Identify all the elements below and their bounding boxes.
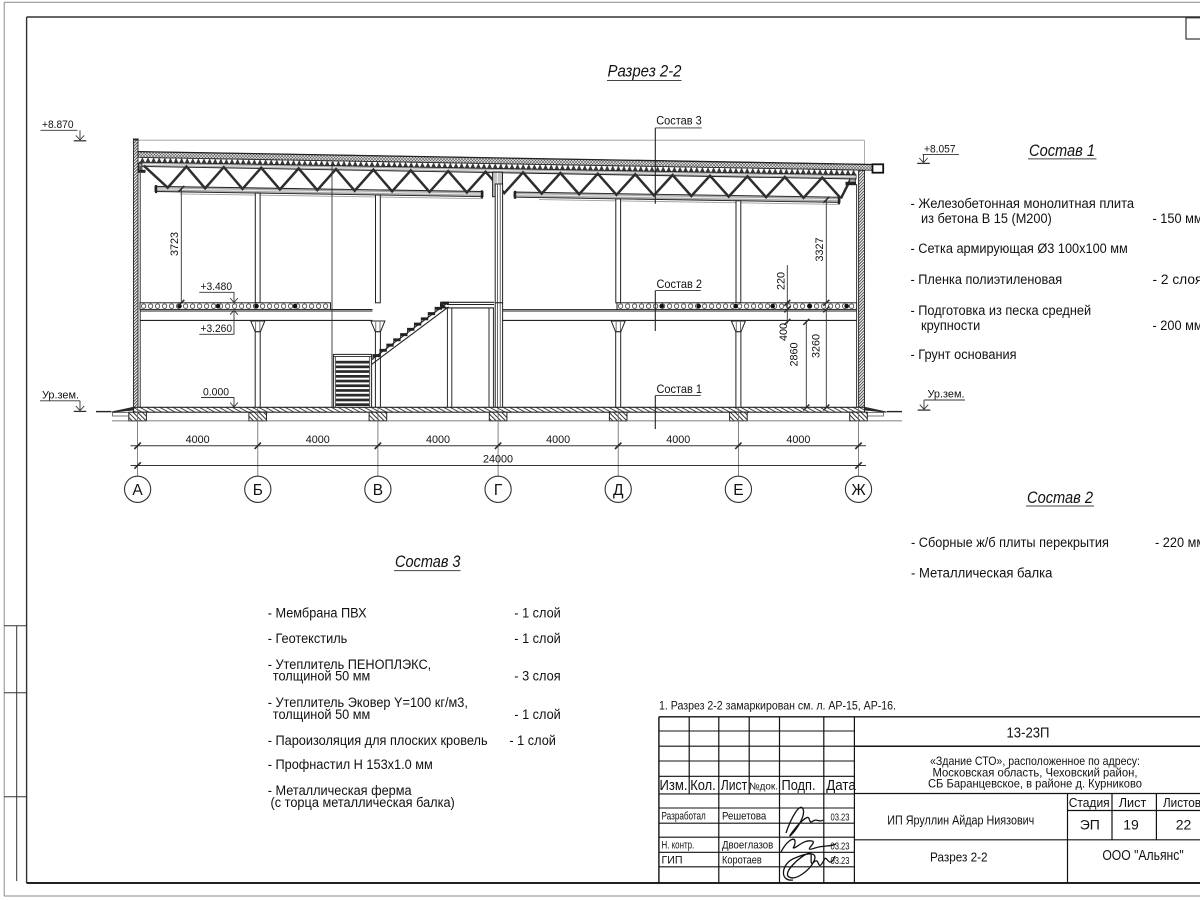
svg-text:2860: 2860 — [789, 342, 801, 366]
svg-text:3723: 3723 — [169, 232, 181, 256]
svg-text:- Пароизоляция для плоских кро: - Пароизоляция для плоских кровель — [268, 733, 488, 749]
svg-text:- Грунт основания: - Грунт основания — [911, 347, 1017, 363]
svg-text:Ур.зем.: Ур.зем. — [928, 388, 965, 400]
svg-text:(с торца металлическая балка): (с торца металлическая балка) — [271, 795, 455, 811]
svg-text:4000: 4000 — [666, 434, 690, 446]
svg-text:Н. контр.: Н. контр. — [662, 840, 695, 852]
svg-text:Состав 3: Состав 3 — [656, 113, 702, 127]
svg-text:- 200 мм: - 200 мм — [1153, 318, 1200, 334]
svg-text:Стадия: Стадия — [1069, 795, 1110, 810]
svg-text:+8.057: +8.057 — [924, 144, 956, 156]
svg-text:- Металлическая балка: - Металлическая балка — [911, 566, 1053, 582]
svg-text:- 2 слоя: - 2 слоя — [1153, 272, 1200, 288]
svg-text:- Пленка полиэтиленовая: - Пленка полиэтиленовая — [911, 272, 1063, 288]
svg-text:Состав 1: Состав 1 — [1029, 142, 1095, 160]
svg-text:Подп.: Подп. — [782, 778, 816, 794]
svg-text:Разрез 2-2: Разрез 2-2 — [608, 62, 682, 81]
svg-text:Лист: Лист — [1119, 795, 1147, 810]
svg-text:- 1 слой: - 1 слой — [509, 733, 556, 749]
svg-text:- Мембрана ПВХ: - Мембрана ПВХ — [268, 605, 367, 621]
svg-text:- 1 слой: - 1 слой — [514, 605, 561, 621]
svg-text:Состав 2: Состав 2 — [1027, 489, 1093, 507]
svg-text:+3.480: +3.480 — [201, 281, 233, 293]
svg-text:Кол.: Кол. — [690, 778, 716, 794]
svg-text:Е: Е — [733, 482, 743, 499]
svg-text:4000: 4000 — [546, 434, 570, 446]
svg-text:А: А — [132, 482, 143, 499]
svg-text:3327: 3327 — [814, 237, 826, 261]
svg-text:4000: 4000 — [786, 434, 810, 446]
svg-text:- Сетка армирующая Ø3 100х100: - Сетка армирующая Ø3 100х100 мм — [911, 241, 1128, 257]
svg-text:- 1 слой: - 1 слой — [514, 631, 561, 647]
svg-text:Двоеглазов: Двоеглазов — [722, 840, 773, 852]
svg-text:- 1 слой: - 1 слой — [514, 707, 561, 723]
svg-text:22: 22 — [1176, 817, 1192, 833]
svg-text:13-23П: 13-23П — [1007, 726, 1050, 742]
svg-text:4000: 4000 — [186, 434, 210, 446]
svg-text:ЭП: ЭП — [1080, 817, 1100, 833]
svg-text:Состав 2: Состав 2 — [657, 277, 703, 291]
svg-text:ИП Яруллин Айдар Ниязович: ИП Яруллин Айдар Ниязович — [887, 813, 1034, 828]
svg-text:- Геотекстиль: - Геотекстиль — [268, 631, 348, 647]
svg-text:В: В — [373, 482, 383, 499]
svg-text:Б: Б — [253, 482, 263, 499]
svg-text:Состав 3: Состав 3 — [395, 553, 461, 571]
svg-text:1. Разрез 2-2 замаркирован см.: 1. Разрез 2-2 замаркирован см. л. АР-15,… — [659, 699, 896, 713]
svg-text:0.000: 0.000 — [203, 386, 229, 398]
svg-text:4000: 4000 — [306, 434, 330, 446]
svg-text:Ур.зем.: Ур.зем. — [42, 389, 79, 401]
svg-text:- Подготовка из песка средней: - Подготовка из песка средней — [911, 303, 1092, 319]
svg-text:Ж: Ж — [851, 482, 866, 499]
svg-text:3260: 3260 — [811, 334, 823, 358]
svg-text:- 150 мм: - 150 мм — [1153, 211, 1200, 227]
svg-text:Дата: Дата — [826, 778, 856, 794]
svg-text:Листов: Листов — [1163, 795, 1200, 810]
svg-text:из бетона В 15 (М200): из бетона В 15 (М200) — [921, 211, 1052, 227]
svg-text:Состав 1: Состав 1 — [657, 382, 703, 396]
svg-text:Изм.: Изм. — [660, 778, 688, 794]
svg-text:- Профнастил Н 153х1.0 мм: - Профнастил Н 153х1.0 мм — [268, 757, 433, 773]
svg-text:Решетова: Решетова — [722, 811, 767, 823]
svg-text:СБ Баранцевское, в районе д. К: СБ Баранцевское, в районе д. Курниково — [928, 777, 1142, 791]
svg-text:19: 19 — [1123, 817, 1139, 833]
svg-text:- Сборные ж/б плиты перекрытия: - Сборные ж/б плиты перекрытия — [911, 535, 1109, 551]
svg-text:400: 400 — [778, 323, 790, 341]
svg-text:4000: 4000 — [426, 434, 450, 446]
svg-text:Разрез 2-2: Разрез 2-2 — [930, 850, 988, 865]
svg-text:крупности: крупности — [921, 318, 980, 334]
svg-text:03.23: 03.23 — [831, 842, 850, 853]
svg-text:Д: Д — [613, 482, 624, 499]
svg-text:+3.260: +3.260 — [201, 323, 233, 335]
svg-text:ООО "Альянс": ООО "Альянс" — [1102, 848, 1183, 864]
svg-text:+8.870: +8.870 — [42, 119, 74, 131]
svg-text:24000: 24000 — [483, 454, 513, 466]
svg-text:Коротаев: Коротаев — [722, 855, 762, 867]
svg-text:Г: Г — [494, 482, 503, 499]
svg-text:- Железобетонная монолитная п: - Железобетонная монолитная плита — [911, 196, 1135, 212]
svg-text:Лист: Лист — [721, 778, 748, 794]
svg-text:- 3 слоя: - 3 слоя — [514, 669, 560, 685]
svg-text:03.23: 03.23 — [831, 813, 850, 824]
svg-text:№док.: №док. — [749, 781, 778, 792]
svg-text:толщиной 50 мм: толщиной 50 мм — [273, 707, 371, 723]
svg-text:03.23: 03.23 — [831, 856, 850, 867]
svg-text:- 220 мм: - 220 мм — [1155, 535, 1200, 551]
svg-text:Разработал: Разработал — [662, 811, 706, 823]
svg-text:220: 220 — [775, 272, 787, 290]
svg-text:толщиной 50 мм: толщиной 50 мм — [273, 669, 371, 685]
svg-text:ГИП: ГИП — [662, 855, 683, 867]
